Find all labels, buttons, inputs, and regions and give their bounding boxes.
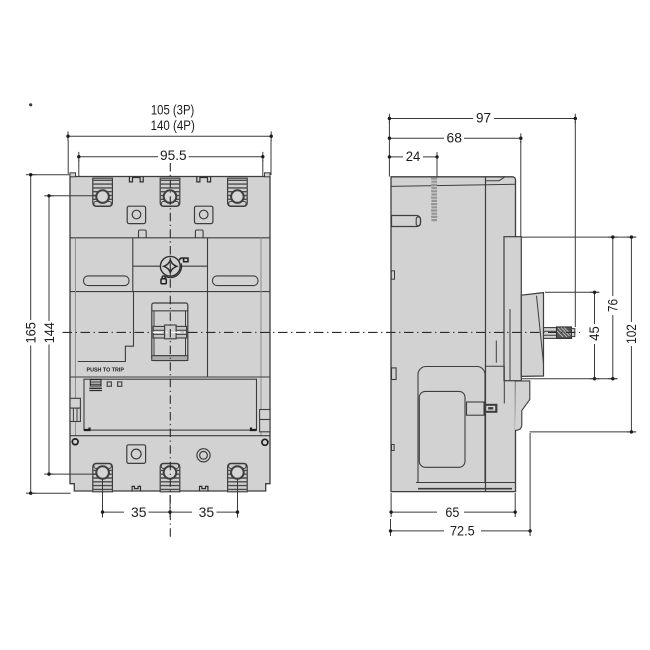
svg-text:95.5: 95.5 [160,148,187,163]
svg-text:68: 68 [447,130,462,145]
svg-text:65: 65 [445,505,459,520]
svg-text:165: 165 [24,322,39,343]
svg-text:PUSH TO TRIP: PUSH TO TRIP [87,367,125,373]
svg-text:105 (3P): 105 (3P) [151,103,194,118]
svg-text:102: 102 [624,324,639,344]
svg-text:97: 97 [476,111,491,126]
svg-text:45: 45 [587,326,602,341]
svg-text:35: 35 [199,505,215,520]
svg-text:140 (4P): 140 (4P) [151,118,195,133]
svg-text:72.5: 72.5 [450,524,475,539]
svg-text:35: 35 [131,505,147,520]
svg-text:144: 144 [42,322,57,344]
svg-text:24: 24 [406,149,421,164]
svg-text:76: 76 [606,299,621,312]
